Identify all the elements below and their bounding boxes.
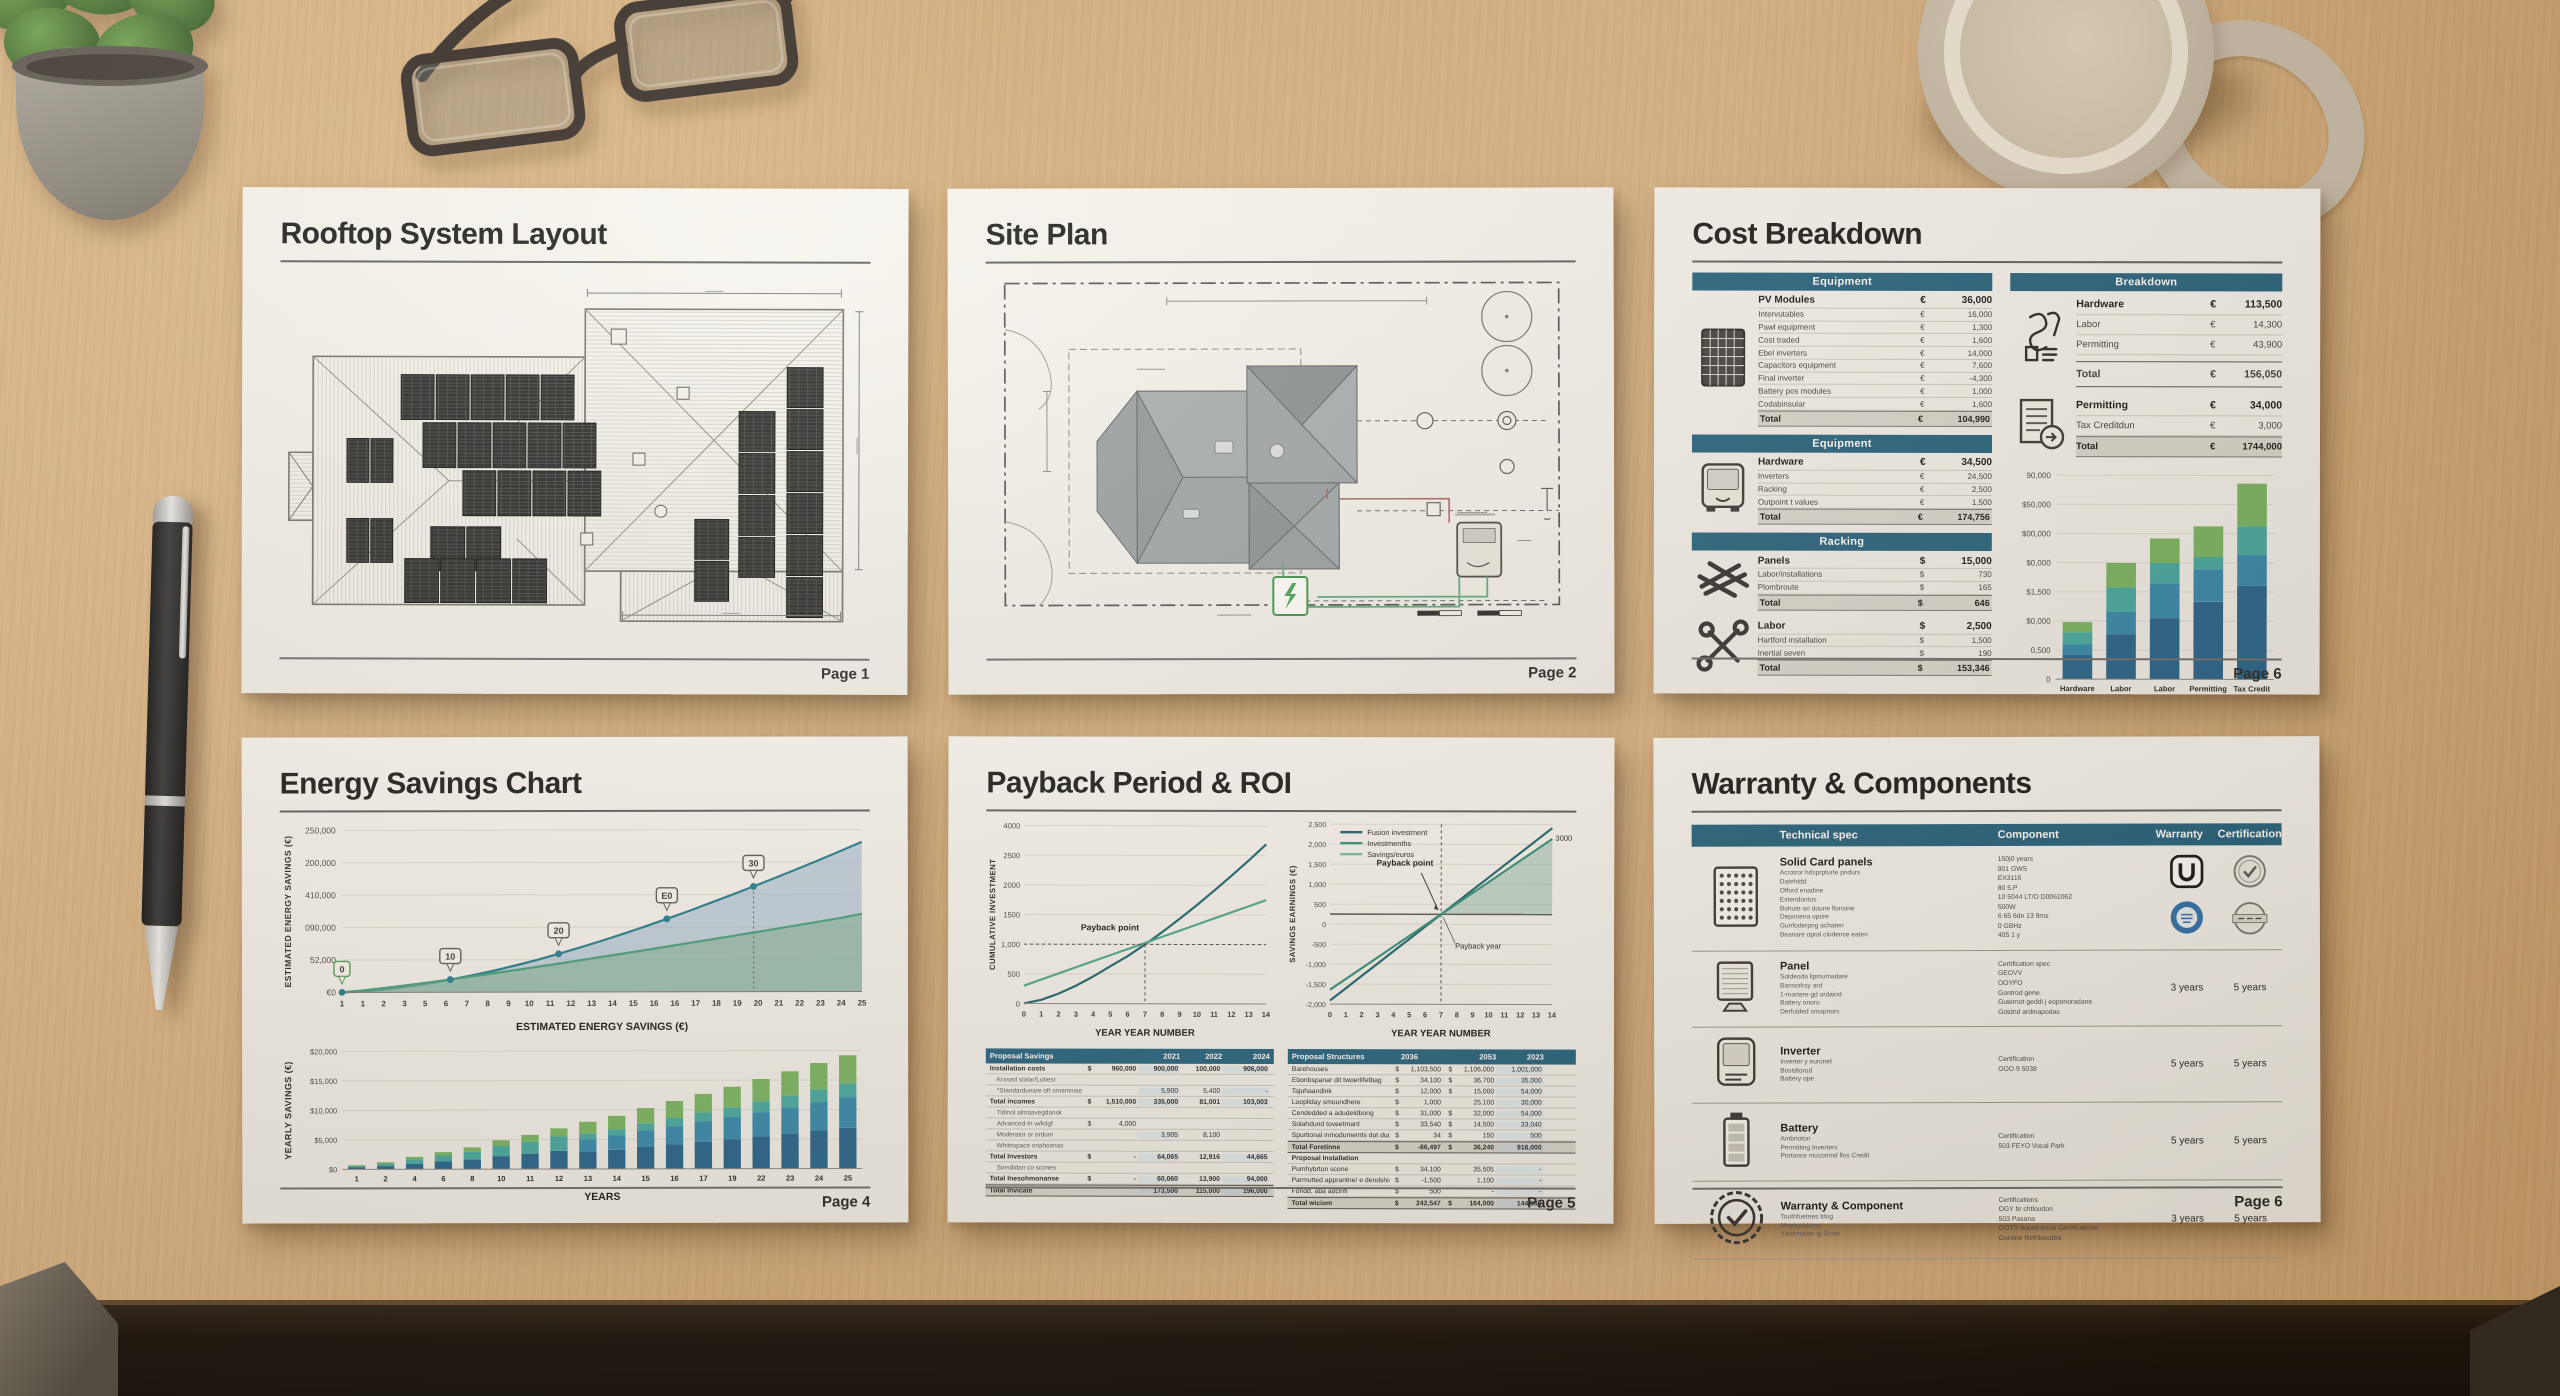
svg-text:23: 23 xyxy=(786,1174,794,1183)
table-row: Battery pos modules€1,000 xyxy=(1758,385,1992,398)
svg-text:Payback point: Payback point xyxy=(1081,922,1139,932)
table-row: Labor$2,500 xyxy=(1758,619,1992,634)
svg-text:22: 22 xyxy=(795,999,804,1008)
svg-text:90,000: 90,000 xyxy=(2026,471,2051,480)
table-row: Hardware€34,500 xyxy=(1758,456,1992,471)
svg-text:3000: 3000 xyxy=(1555,834,1572,843)
svg-text:10: 10 xyxy=(1193,1010,1201,1019)
svg-text:5: 5 xyxy=(1108,1010,1112,1019)
svg-text:7: 7 xyxy=(1439,1010,1443,1019)
chair-back-left xyxy=(0,1262,118,1396)
table-row: Intervutables€16,000 xyxy=(1758,308,1992,321)
page-title: Cost Breakdown xyxy=(1692,217,2282,252)
svg-text:-500: -500 xyxy=(1312,940,1326,949)
svg-text:12: 12 xyxy=(1516,1010,1524,1019)
table-row: Proposal Installation xyxy=(1288,1153,1576,1165)
table-row: Hardware€113,500 xyxy=(2076,294,2282,315)
svg-text:0: 0 xyxy=(1322,920,1326,929)
svg-text:3: 3 xyxy=(402,999,407,1008)
svg-text:19: 19 xyxy=(728,1174,736,1183)
table-row: Tax Creditdun€3,000 xyxy=(2076,416,2282,436)
svg-text:$0,000: $0,000 xyxy=(2026,617,2051,626)
table-row: Tajuhaandink$12,000$15,00054,000 xyxy=(1288,1086,1576,1098)
page-payback-roi: Payback Period & ROI 40002500200015001,0… xyxy=(947,736,1614,1223)
display-icon xyxy=(1711,959,1761,1020)
svg-text:SAVINGS EARNINGS (€): SAVINGS EARNINGS (€) xyxy=(1288,865,1297,963)
pen-nib xyxy=(139,925,181,1010)
svg-text:6: 6 xyxy=(441,1174,445,1183)
cost-tables-right: BreakdownHardware€113,500Labor€14,300Per… xyxy=(2010,273,2282,457)
total-row: Total$646 xyxy=(1758,594,1992,610)
svg-text:30: 30 xyxy=(748,858,758,868)
svg-text:YEAR YEAR NUMBER: YEAR YEAR NUMBER xyxy=(1391,1028,1491,1039)
eyeglasses xyxy=(383,0,848,181)
svg-text:9: 9 xyxy=(506,999,511,1008)
svg-text:1: 1 xyxy=(361,999,366,1008)
svg-text:16: 16 xyxy=(670,999,679,1008)
svg-text:$5,000: $5,000 xyxy=(314,1136,337,1145)
page-number: Page 1 xyxy=(279,657,869,683)
svg-text:8: 8 xyxy=(470,1174,474,1183)
page-number: Page 6 xyxy=(1693,1186,2283,1212)
battery-icon xyxy=(1718,1111,1754,1174)
table-row: Total Investors$-64,06512,91644,665 xyxy=(986,1151,1274,1163)
page-number: Page 2 xyxy=(986,657,1576,682)
svg-text:13: 13 xyxy=(1245,1010,1253,1019)
table-row: Racking€2,500 xyxy=(1758,483,1992,496)
table-row: Krasad stalar/Lubest xyxy=(986,1074,1274,1086)
svg-text:10: 10 xyxy=(497,1174,505,1183)
cumulative-investment-chart: 40002500200015001,0005000Payback point01… xyxy=(986,815,1274,1045)
page-number: Page 5 xyxy=(986,1186,1576,1211)
plant-pot xyxy=(16,60,204,220)
svg-text:25: 25 xyxy=(858,998,867,1007)
table-row: Sorsdidan co scones xyxy=(986,1162,1274,1174)
svg-text:2000: 2000 xyxy=(1003,881,1020,890)
table-row: Codabinsular€1,600 xyxy=(1758,398,1992,411)
svg-text:2: 2 xyxy=(381,999,386,1008)
svg-text:410,000: 410,000 xyxy=(305,890,336,900)
svg-text:0: 0 xyxy=(1022,1009,1026,1018)
table-row: BatteryAmbriotonPermitting InvertersPort… xyxy=(1692,1102,2282,1182)
svg-text:4000: 4000 xyxy=(1003,821,1020,830)
page-cost-breakdown: Cost Breakdown EquipmentPV Modules€36,00… xyxy=(1654,187,2321,694)
svg-text:17: 17 xyxy=(691,999,700,1008)
svg-text:$50,000: $50,000 xyxy=(2022,500,2051,509)
table-row: Permitting€43,900 xyxy=(2076,335,2282,355)
svg-text:11: 11 xyxy=(1500,1010,1508,1019)
svg-text:-1,500: -1,500 xyxy=(1306,980,1326,989)
svg-text:12: 12 xyxy=(555,1174,563,1183)
svg-text:2,000: 2,000 xyxy=(1308,840,1326,849)
potted-plant xyxy=(0,0,274,240)
svg-text:Labor: Labor xyxy=(2154,684,2175,693)
page-number: Page 6 xyxy=(1692,657,2282,682)
svg-text:24: 24 xyxy=(837,999,846,1008)
round-blue-badge-icon xyxy=(2168,898,2206,941)
svg-text:7: 7 xyxy=(465,999,470,1008)
svg-text:1: 1 xyxy=(340,999,345,1008)
svg-text:9: 9 xyxy=(1471,1010,1475,1019)
svg-text:1: 1 xyxy=(355,1174,359,1183)
svg-text:$20,000: $20,000 xyxy=(310,1047,337,1056)
svg-text:0: 0 xyxy=(1016,999,1020,1008)
svg-text:E0: E0 xyxy=(661,891,672,901)
proposal-savings-table: Proposal Savings202120222024Installation… xyxy=(986,1048,1274,1209)
svg-text:19: 19 xyxy=(733,999,742,1008)
svg-text:8: 8 xyxy=(1160,1010,1164,1019)
svg-text:6: 6 xyxy=(1126,1010,1130,1019)
table-row: Moderator or ordum3,9058,100 xyxy=(986,1129,1274,1141)
table-row: Tidinol almaavegdansk xyxy=(986,1107,1274,1119)
svg-text:3: 3 xyxy=(1375,1010,1379,1019)
page-rooftop-layout: Rooftop System Layout xyxy=(241,187,908,695)
table-row: Advanced-In w/kdgf$4,000 xyxy=(986,1118,1274,1130)
table-header: Proposal Structures203620532023 xyxy=(1288,1049,1576,1065)
cost-section: RackingPanels$15,000Labor/installations$… xyxy=(1692,533,1992,611)
solar-panel-icon xyxy=(1698,327,1748,394)
svg-text:€0: €0 xyxy=(327,987,337,997)
svg-text:20: 20 xyxy=(754,999,763,1008)
table-row: Cost traded€1,600 xyxy=(1758,334,1992,347)
svg-text:14: 14 xyxy=(1548,1011,1557,1020)
table-header: Technical specComponentWarrantyCertifica… xyxy=(1692,823,2282,847)
svg-text:9: 9 xyxy=(1177,1010,1181,1019)
table-row: Total Inesohmonanse$-60,06013,90094,000 xyxy=(986,1173,1274,1185)
table-row: Outpoint t values€1,500 xyxy=(1758,496,1992,509)
page-title: Energy Savings Chart xyxy=(280,766,870,801)
table-row: Ebel inverters€14,000 xyxy=(1758,347,1992,360)
table-row: Panels$15,000 xyxy=(1758,554,1992,569)
inverter-icon xyxy=(1697,460,1749,521)
table-row: Final inverter€-4,300 xyxy=(1758,372,1992,385)
table-row: Pumhybrton scone$34,10035,505- xyxy=(1288,1164,1576,1176)
svg-text:8: 8 xyxy=(485,999,490,1008)
svg-text:Fusion investment: Fusion investment xyxy=(1367,828,1427,837)
svg-text:1,000: 1,000 xyxy=(1308,880,1326,889)
desk-scene: Rooftop System Layout xyxy=(0,0,2560,1396)
page-energy-savings: Energy Savings Chart 250,000200,000410,0… xyxy=(242,736,909,1223)
svg-text:22: 22 xyxy=(757,1174,765,1183)
svg-text:4: 4 xyxy=(412,1174,417,1183)
table-row: InverterInverter y euronetBostdtorudBatt… xyxy=(1692,1026,2282,1104)
table-row: Total incomes$1,510,000335,00081,001103,… xyxy=(986,1096,1274,1108)
seal-check-icon xyxy=(2231,852,2269,895)
svg-text:18: 18 xyxy=(712,999,721,1008)
svg-text:11: 11 xyxy=(1210,1010,1218,1019)
total-row: Total€104,990 xyxy=(1758,411,1992,427)
svg-text:11: 11 xyxy=(526,1174,534,1183)
svg-text:-1,000: -1,000 xyxy=(1306,960,1326,969)
svg-text:10: 10 xyxy=(445,952,455,962)
table-row: Loopliday smoundhere$1,00025,10030,000 xyxy=(1288,1097,1576,1109)
svg-text:17: 17 xyxy=(699,1174,707,1183)
svg-text:CUMULATIVE INVESTMENT: CUMULATIVE INVESTMENT xyxy=(988,859,997,970)
table-header: Proposal Savings202120222024 xyxy=(986,1048,1274,1064)
table-row: Whitespace onahoonas xyxy=(986,1140,1274,1152)
proposal-structures-table: Proposal Structures203620532023Barehouse… xyxy=(1288,1049,1576,1210)
svg-text:500: 500 xyxy=(1007,970,1020,979)
table-row: Labor/installations$730 xyxy=(1758,569,1992,582)
svg-text:13: 13 xyxy=(1532,1011,1540,1020)
desk-edge-shadow xyxy=(0,1300,2560,1396)
section-header: Equipment xyxy=(1692,435,1992,454)
svg-text:Hardware: Hardware xyxy=(2060,684,2095,693)
svg-text:2: 2 xyxy=(1056,1010,1060,1019)
svg-text:15: 15 xyxy=(641,1174,649,1183)
invoice-icon xyxy=(2016,396,2066,457)
table-row: Installation costs$960,000900,000100,000… xyxy=(986,1063,1274,1075)
svg-text:4: 4 xyxy=(1391,1010,1396,1019)
table-row: Solid Card panelsAcrotror hdsprpturte pn… xyxy=(1692,845,2282,952)
svg-text:24: 24 xyxy=(815,1174,824,1183)
svg-text:6: 6 xyxy=(444,999,449,1008)
svg-text:13: 13 xyxy=(584,1174,592,1183)
svg-text:2,500: 2,500 xyxy=(1308,820,1326,829)
svg-text:1500: 1500 xyxy=(1003,910,1020,919)
table-row: Permitting€34,000 xyxy=(2076,395,2282,416)
table-row: Labor€14,300 xyxy=(2076,315,2282,335)
cost-section: BreakdownHardware€113,500Labor€14,300Per… xyxy=(2010,273,2282,387)
racking-icon xyxy=(1695,556,1751,607)
svg-text:23: 23 xyxy=(816,999,825,1008)
svg-text:Payback year: Payback year xyxy=(1455,942,1501,951)
svg-text:8: 8 xyxy=(1455,1010,1459,1019)
svg-text:16: 16 xyxy=(650,999,659,1008)
table-row: Pawl equipment€1,300 xyxy=(1758,321,1992,334)
svg-text:11: 11 xyxy=(546,999,555,1008)
svg-text:10: 10 xyxy=(1484,1010,1492,1019)
svg-text:$15,000: $15,000 xyxy=(310,1077,337,1086)
table-row: Cendedded a adudeldbong$31,000$32,00054,… xyxy=(1288,1108,1576,1120)
svg-text:14: 14 xyxy=(608,999,617,1008)
table-row: Barehouses$1,103,500$1,106,0001,001,000 xyxy=(1288,1064,1576,1076)
cost-section: EquipmentHardware€34,500Inverters€24,500… xyxy=(1692,435,1992,526)
table-row: Ebonbspanar dit twoerlifetbag$34,100$36,… xyxy=(1288,1075,1576,1087)
rooftop-plan-drawing xyxy=(280,270,871,624)
svg-text:090,000: 090,000 xyxy=(305,923,336,933)
svg-text:1: 1 xyxy=(1039,1009,1043,1018)
cost-section: Permitting€34,000Tax Creditdun€3,000Tota… xyxy=(2010,395,2282,457)
svg-text:Labor: Labor xyxy=(2110,684,2131,693)
svg-text:1,000: 1,000 xyxy=(1001,940,1020,949)
svg-text:2: 2 xyxy=(1360,1010,1364,1019)
page-title: Payback Period & ROI xyxy=(986,766,1576,801)
svg-text:14: 14 xyxy=(613,1174,622,1183)
svg-text:1,500: 1,500 xyxy=(1308,860,1326,869)
svg-text:YEAR YEAR NUMBER: YEAR YEAR NUMBER xyxy=(1095,1028,1195,1039)
svg-text:$1,500: $1,500 xyxy=(2026,588,2051,597)
table-row: *Standardunare oft omamniae5,9005,400- xyxy=(986,1085,1274,1097)
section-header: Breakdown xyxy=(2010,273,2282,291)
svg-text:$0,000: $0,000 xyxy=(2026,558,2051,567)
svg-text:$00,000: $00,000 xyxy=(2022,529,2051,538)
energy-savings-area-chart: 250,000200,000410,000090,00052,000€01123… xyxy=(280,817,870,1039)
svg-text:13: 13 xyxy=(587,999,596,1008)
svg-text:0: 0 xyxy=(1328,1010,1332,1019)
inverter-box-icon xyxy=(1711,1035,1761,1096)
svg-text:21: 21 xyxy=(774,999,783,1008)
svg-text:0: 0 xyxy=(339,964,344,974)
table-row: Spurtional inmodumemts dot dudel$34$1505… xyxy=(1288,1130,1576,1142)
svg-text:25: 25 xyxy=(844,1174,852,1183)
cost-tables-left: EquipmentPV Modules€36,000Intervutables€… xyxy=(1692,272,1993,716)
ul-badge-icon xyxy=(2169,853,2205,894)
svg-text:7: 7 xyxy=(1143,1010,1147,1019)
section-header: Equipment xyxy=(1692,272,1992,291)
svg-text:Tax Credit: Tax Credit xyxy=(2233,684,2270,693)
svg-text:12: 12 xyxy=(566,999,575,1008)
roi-breakeven-chart: 2,5002,0001,5001,0005000-500-1,000-1,500… xyxy=(1286,816,1574,1046)
svg-text:$0: $0 xyxy=(329,1165,337,1174)
svg-text:$10,000: $10,000 xyxy=(310,1106,337,1115)
fountain-pen xyxy=(121,495,216,1027)
table-row: Plombroute$165 xyxy=(1758,581,1992,594)
svg-text:5: 5 xyxy=(423,999,428,1008)
svg-text:YEARLY SAVINGS (€): YEARLY SAVINGS (€) xyxy=(283,1061,293,1160)
table-row: Hartford installation$1,500 xyxy=(1758,634,1992,647)
table-row: Capacitors equipment€7,600 xyxy=(1758,360,1992,373)
svg-text:14: 14 xyxy=(1262,1010,1271,1019)
svg-text:250,000: 250,000 xyxy=(305,825,336,835)
yearly-savings-bar-chart: $20,000$15,000$10,000$5,000$012468101112… xyxy=(280,1044,870,1208)
svg-text:4: 4 xyxy=(1091,1010,1096,1019)
page-title: Rooftop System Layout xyxy=(280,217,870,253)
svg-text:20: 20 xyxy=(554,926,564,936)
svg-text:2: 2 xyxy=(384,1174,388,1183)
table-row: Parmutted apprantne/ e dendshing$-1,5001… xyxy=(1288,1175,1576,1187)
svg-text:ESTIMATED ENERGY SAVINGS (€): ESTIMATED ENERGY SAVINGS (€) xyxy=(516,1021,688,1033)
page-title: Site Plan xyxy=(986,217,1576,252)
page-number: Page 4 xyxy=(280,1186,870,1211)
svg-text:10: 10 xyxy=(525,999,534,1008)
svg-text:Payback point: Payback point xyxy=(1376,858,1433,868)
svg-text:2500: 2500 xyxy=(1003,851,1020,860)
table-row: PV Modules€36,000 xyxy=(1758,294,1992,309)
svg-text:-2,000: -2,000 xyxy=(1306,1000,1326,1009)
total-row: Total€174,756 xyxy=(1758,509,1992,525)
svg-text:52,000: 52,000 xyxy=(310,955,336,965)
table-row: Solahdund toveetmant$33,540$14,50033,040 xyxy=(1288,1119,1576,1131)
table-row: Total Foretinne$-86,497$36,240916,000 xyxy=(1288,1141,1576,1154)
table-row: PanelSoldeoda lipmumadareBansorksy ard1-… xyxy=(1692,950,2282,1028)
svg-text:Permitting: Permitting xyxy=(2189,684,2227,693)
section-header: Racking xyxy=(1692,533,1992,552)
total-row: Total€156,050 xyxy=(2076,361,2282,387)
page-warranty-components: Warranty & Components Technical specComp… xyxy=(1653,736,2320,1224)
svg-text:3: 3 xyxy=(1074,1010,1078,1019)
seal-band-icon xyxy=(2229,899,2271,942)
page-title: Warranty & Components xyxy=(1691,766,2281,802)
svg-text:12: 12 xyxy=(1227,1010,1235,1019)
table-row: Inverters€24,500 xyxy=(1758,470,1992,483)
cost-section: EquipmentPV Modules€36,000Intervutables€… xyxy=(1692,272,1992,427)
svg-text:ESTIMATED ENERGY SAVINGS (€): ESTIMATED ENERGY SAVINGS (€) xyxy=(283,835,293,987)
svg-text:16: 16 xyxy=(670,1174,678,1183)
svg-text:200,000: 200,000 xyxy=(305,858,336,868)
svg-text:5: 5 xyxy=(1407,1010,1411,1019)
svg-text:500: 500 xyxy=(1314,900,1326,909)
svg-text:6: 6 xyxy=(1423,1010,1427,1019)
page-site-plan: Site Plan xyxy=(947,187,1614,694)
panel-grid-icon xyxy=(1710,864,1762,933)
svg-text:1: 1 xyxy=(1344,1010,1348,1019)
svg-text:15: 15 xyxy=(629,999,638,1008)
site-plan-drawing xyxy=(986,270,1577,623)
stamp-icon xyxy=(2018,309,2064,372)
svg-text:0,500: 0,500 xyxy=(2031,646,2052,655)
total-row: Total€1744,000 xyxy=(2076,436,2282,457)
svg-text:Investmenths: Investmenths xyxy=(1367,839,1411,848)
